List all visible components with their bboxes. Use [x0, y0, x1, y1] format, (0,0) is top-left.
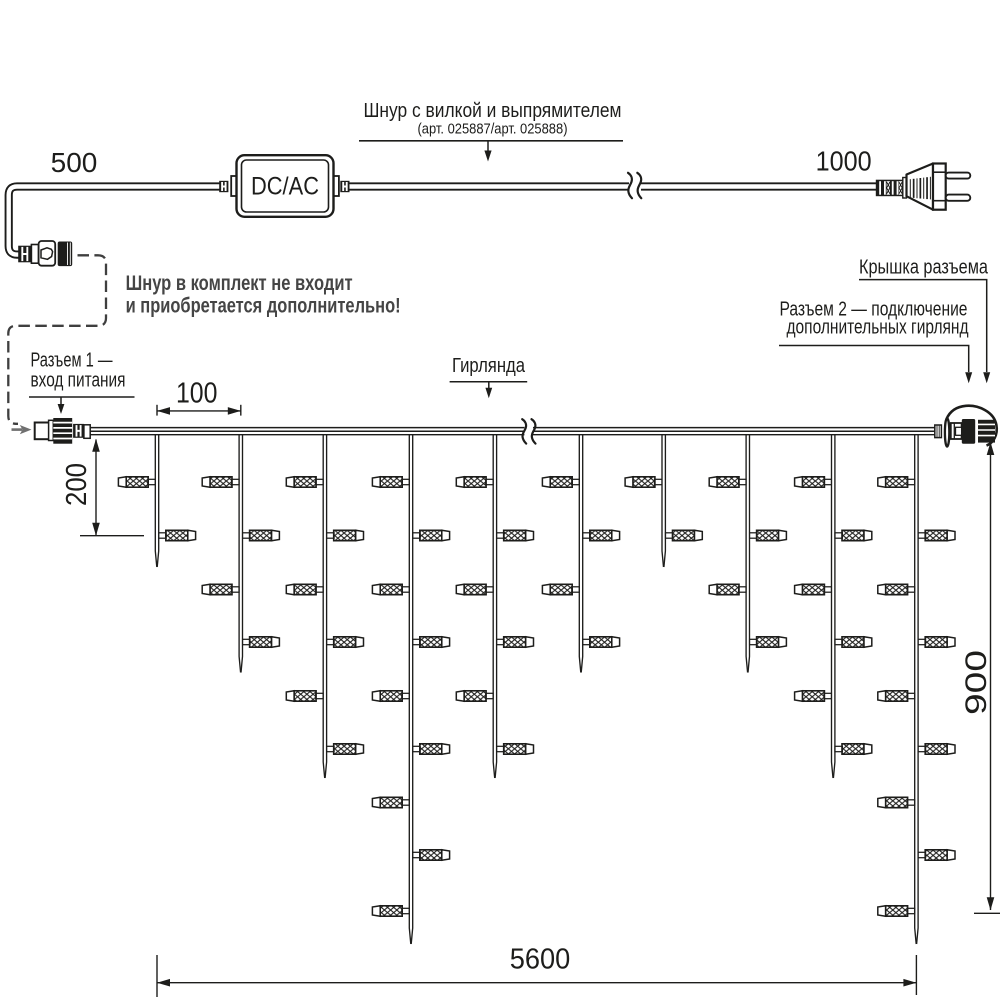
svg-text:500: 500: [51, 147, 98, 178]
svg-text:вход питания: вход питания: [31, 370, 126, 392]
svg-text:900: 900: [960, 650, 993, 715]
svg-text:100: 100: [176, 377, 218, 409]
svg-text:Крышка разъема: Крышка разъема: [859, 257, 989, 279]
svg-text:Шнур в комплект не входит: Шнур в комплект не входит: [126, 272, 353, 295]
svg-text:Гирлянда: Гирлянда: [452, 355, 526, 377]
svg-text:(арт. 025887/арт. 025888): (арт. 025887/арт. 025888): [418, 122, 568, 138]
svg-text:1000: 1000: [816, 146, 872, 177]
svg-text:DC/AC: DC/AC: [251, 173, 319, 201]
svg-text:200: 200: [61, 463, 93, 506]
svg-text:и приобретается дополнительно!: и приобретается дополнительно!: [126, 295, 401, 318]
svg-text:дополнительных гирлянд: дополнительных гирлянд: [787, 317, 969, 339]
svg-text:Шнур с вилкой и выпрямителем: Шнур с вилкой и выпрямителем: [364, 99, 622, 122]
svg-text:Разъем 1 —: Разъем 1 —: [31, 350, 113, 372]
svg-text:5600: 5600: [510, 943, 571, 975]
